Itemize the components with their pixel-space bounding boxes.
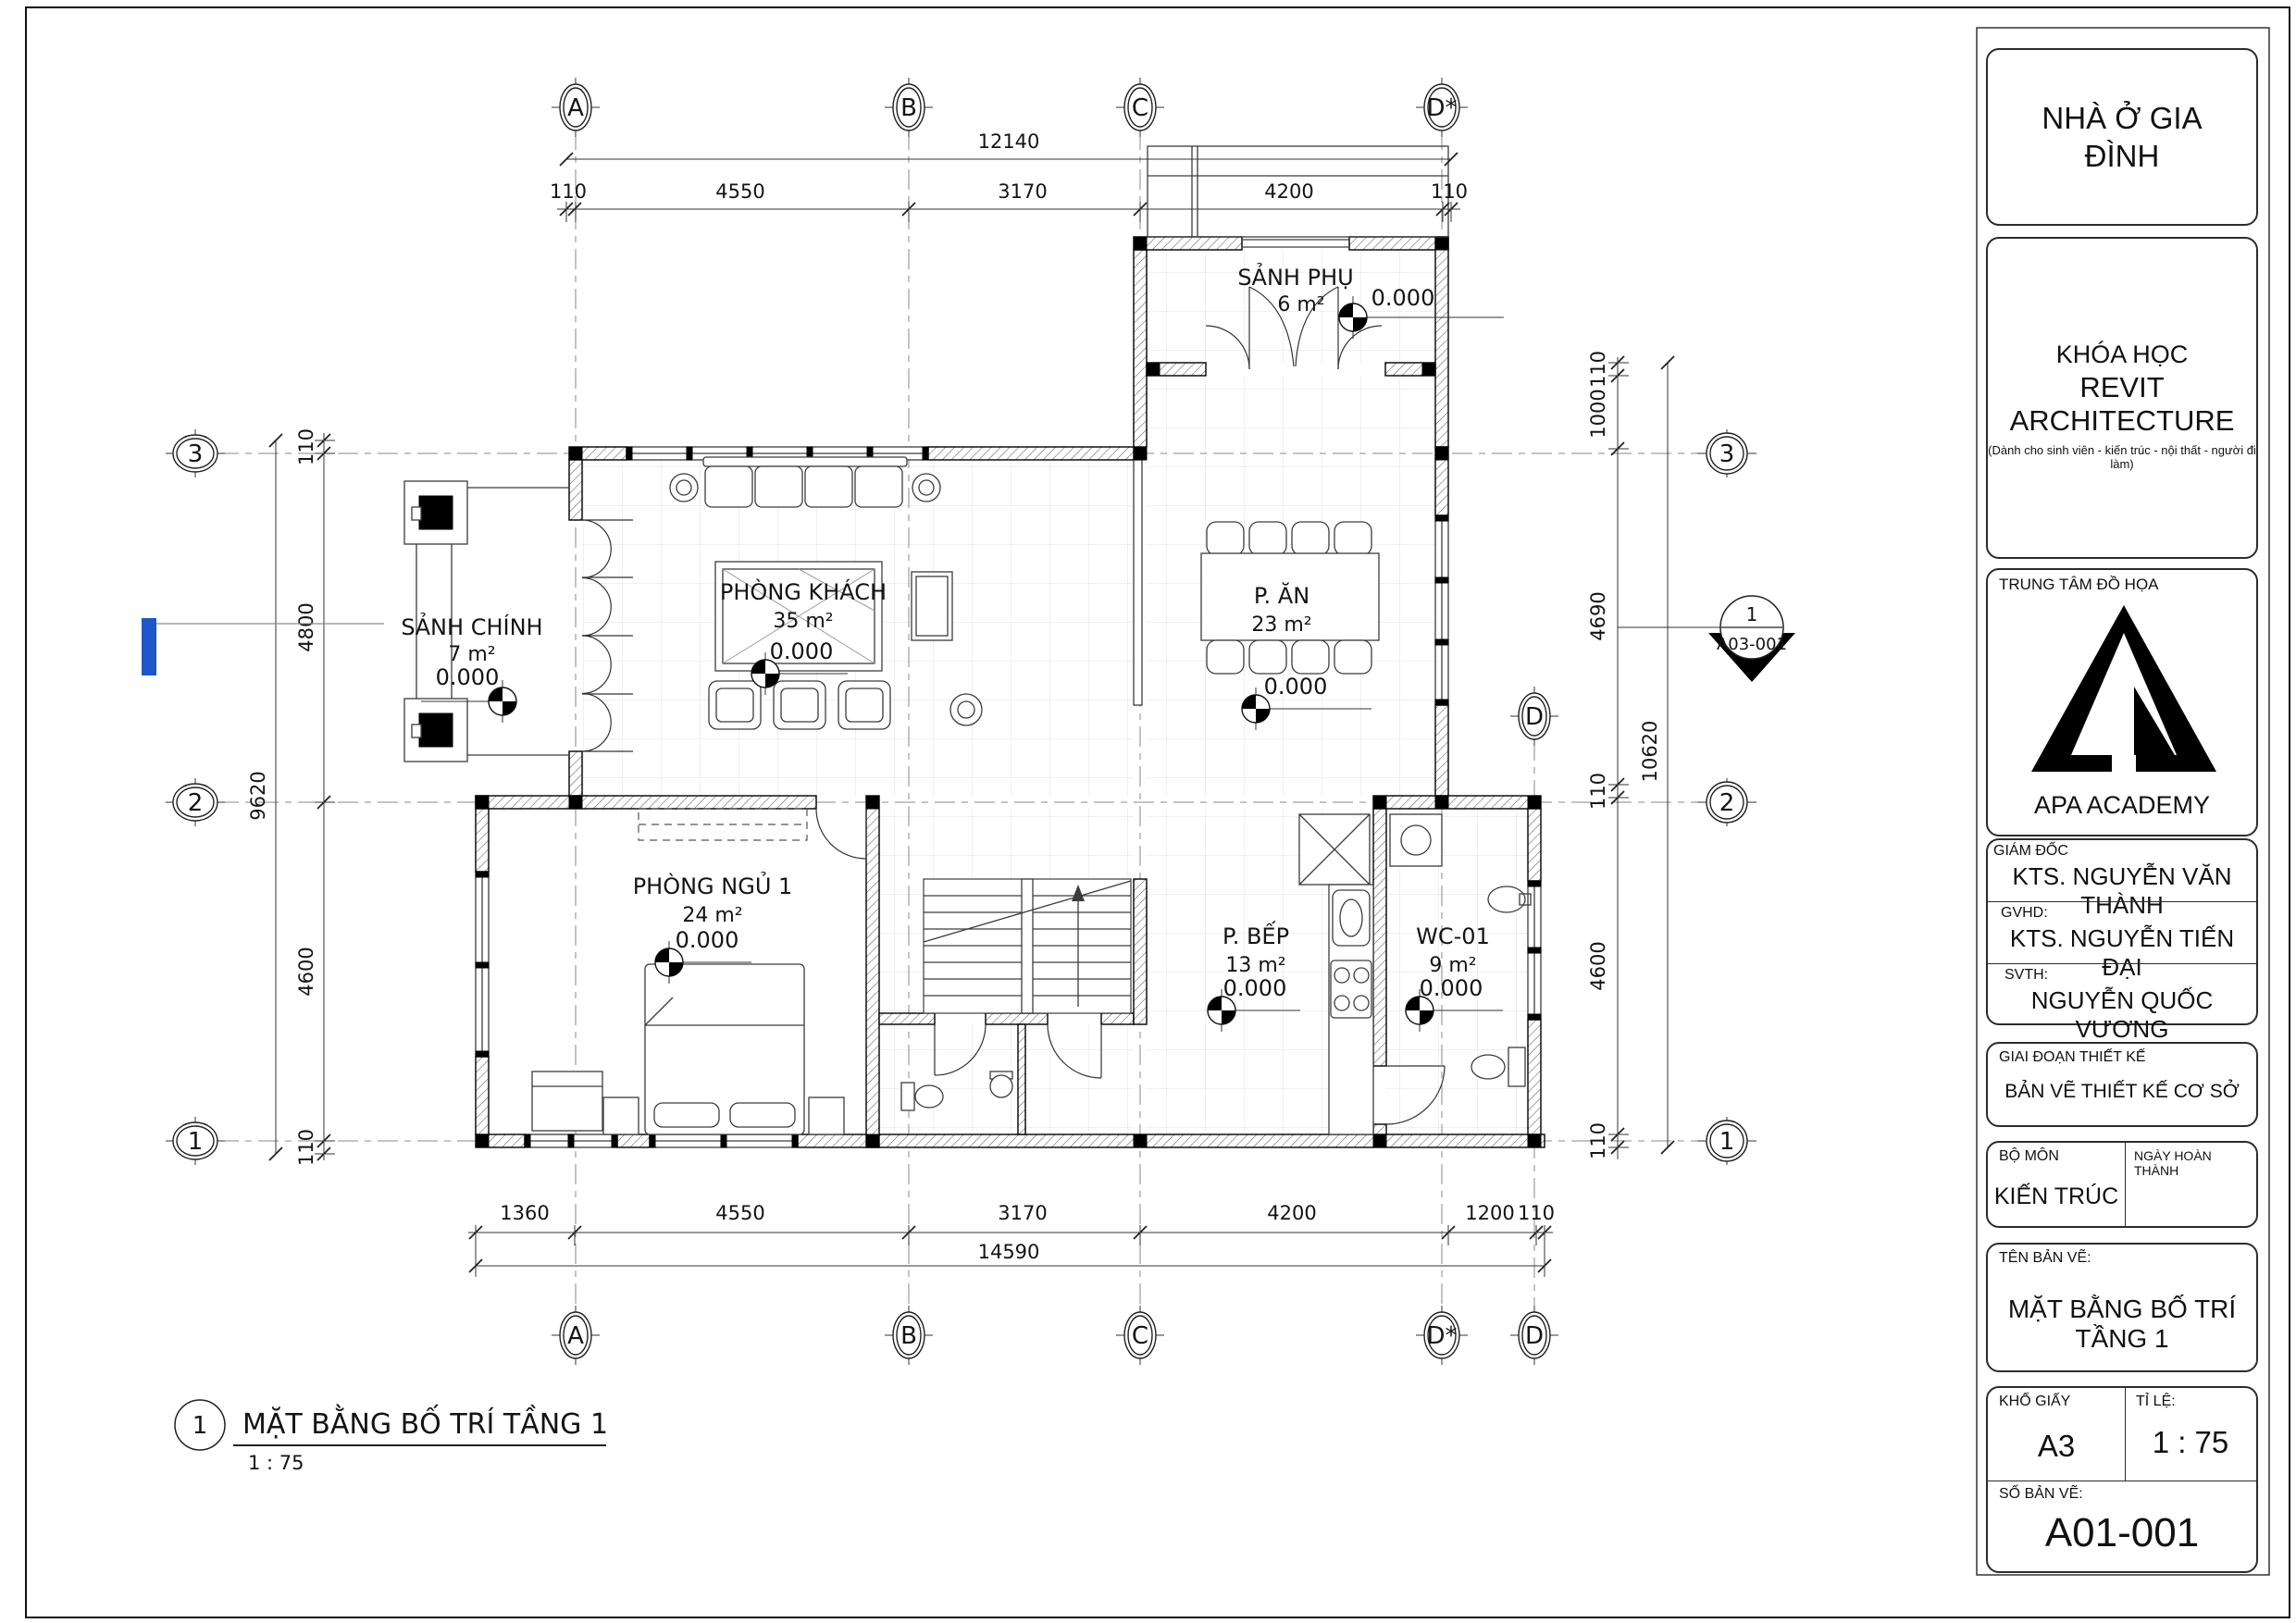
- door-bedroom: [816, 809, 866, 859]
- people-box: GIÁM ĐỐC KTS. NGUYỄN VĂN THÀNH GVHD: KTS…: [1986, 838, 2258, 1025]
- student-value: NGUYỄN QUỐC VƯƠNG: [1988, 986, 2256, 1044]
- number-value: A01-001: [1988, 1510, 2256, 1556]
- grid-bubble-Dstar-bottom: D*: [1416, 1306, 1468, 1365]
- dim-text: 4200: [1267, 1202, 1316, 1224]
- advisor-label: GVHD:: [2001, 905, 2048, 922]
- room-level: 0.000: [1264, 674, 1328, 700]
- room-area: 24 m²: [682, 904, 742, 927]
- grid-label: B: [900, 1322, 917, 1350]
- course-line1: KHÓA HỌC: [1988, 341, 2256, 369]
- room-level: 0.000: [1420, 975, 1483, 1001]
- scale-label: TỈ LỆ:: [2136, 1394, 2176, 1410]
- floor-plan-canvas: SẢNH PHỤ 6 m² 0.000 P. ĂN 23 m² 0.000: [0, 0, 2296, 1623]
- course-note: (Dành cho sinh viên - kiến trúc - nội th…: [1988, 443, 2256, 471]
- view-scale: 1 : 75: [248, 1452, 304, 1474]
- director-label: GIÁM ĐỐC: [1993, 843, 2068, 860]
- window-dining-east: [1435, 515, 1448, 705]
- dim-text: 4550: [715, 180, 764, 203]
- grid-bubble-2-right: 2: [1697, 778, 1756, 826]
- dim-text: 3170: [998, 180, 1047, 203]
- room-area: 13 m²: [1225, 954, 1285, 977]
- grid-label: D*: [1426, 94, 1457, 122]
- room-level: 0.000: [436, 664, 500, 690]
- room-area: 6 m²: [1277, 293, 1324, 316]
- room-area: 35 m²: [773, 610, 833, 633]
- grid-label: B: [900, 94, 917, 122]
- date-label: NGÀY HOÀN THÀNH: [2134, 1148, 2256, 1178]
- dim-text: 4600: [295, 947, 317, 996]
- project-name-box: NHÀ Ở GIA ĐÌNH: [1986, 48, 2258, 226]
- dim-text: 4200: [1264, 180, 1313, 203]
- dim-text: 3170: [998, 1202, 1047, 1224]
- cabinet: [912, 572, 952, 640]
- dim-text: 110: [1587, 773, 1609, 810]
- project-name: NHÀ Ở GIA ĐÌNH: [1988, 50, 2256, 224]
- dept-label: BỘ MÔN: [1999, 1148, 2059, 1165]
- drawing-name-value: MẶT BẰNG BỐ TRÍ TẦNG 1: [1988, 1295, 2256, 1354]
- student-label: SVTH:: [2004, 967, 2048, 984]
- grid-label: D: [1525, 1322, 1544, 1350]
- grid-bubble-C-bottom: C: [1116, 1306, 1164, 1365]
- grid-bubble-D-mid: D: [1510, 687, 1558, 746]
- course-box: KHÓA HỌC REVIT ARCHITECTURE (Dành cho si…: [1986, 237, 2258, 559]
- window-wc-east: [1528, 881, 1541, 1020]
- room-name: SẢNH CHÍNH: [401, 612, 542, 640]
- grid-label: A: [567, 1322, 584, 1350]
- apa-academy-logo-icon: [2027, 600, 2221, 775]
- dim-text: 1200: [1465, 1202, 1514, 1224]
- grid-bubble-1-right: 1: [1697, 1117, 1756, 1165]
- dim-text: 110: [1431, 180, 1468, 203]
- dim-text: 110: [1518, 1202, 1555, 1224]
- sheet: { "title_block": { "project": "NHÀ Ở GIA…: [0, 0, 2296, 1623]
- stairs: [924, 879, 1131, 1013]
- dim-text: 10620: [1639, 721, 1661, 783]
- grid-bubble-D-bottom: D: [1510, 1306, 1558, 1365]
- dim-text: 110: [295, 1129, 317, 1166]
- room-name: SẢNH PHỤ: [1237, 262, 1353, 291]
- drawing-name-box: TÊN BẢN VẼ: MẶT BẰNG BỐ TRÍ TẦNG 1: [1986, 1243, 2258, 1372]
- grid-label: C: [1132, 1322, 1148, 1350]
- grid-bubble-A-bottom: A: [552, 1306, 600, 1365]
- grid-label: C: [1132, 94, 1148, 122]
- paper-label: KHỔ GIẤY: [1999, 1394, 2070, 1410]
- grid-label: 3: [1719, 440, 1735, 468]
- room-level: 0.000: [1371, 285, 1435, 311]
- view-name: MẶT BẰNG BỐ TRÍ TẦNG 1: [242, 1404, 608, 1441]
- grid-label: 1: [188, 1128, 204, 1156]
- grid-bubble-3-left: 3: [166, 429, 225, 477]
- room-name: WC-01: [1416, 923, 1490, 949]
- room-sanh-chinh: SẢNH CHÍNH 7 m² 0.000: [401, 612, 542, 723]
- room-name: P. BẾP: [1222, 920, 1289, 949]
- number-label: SỐ BẢN VẼ:: [1999, 1486, 2083, 1503]
- scale-value: 1 : 75: [2125, 1425, 2256, 1460]
- academy-label: TRUNG TÂM ĐỒ HỌA: [1999, 576, 2159, 594]
- dim-text: 14590: [978, 1241, 1040, 1263]
- grid-label: A: [567, 94, 584, 122]
- dimensions-right: 110 1000 4690 110 4600 110 10620: [1587, 351, 1674, 1159]
- view-title: 1 MẶT BẰNG BỐ TRÍ TẦNG 1 1 : 75: [175, 1400, 608, 1474]
- dim-text: 4550: [715, 1202, 764, 1224]
- grid-label: 2: [1719, 789, 1735, 817]
- dim-text: 1360: [500, 1202, 549, 1224]
- grid-label: 2: [188, 789, 204, 817]
- phase-box: GIAI ĐOẠN THIẾT KẾ BẢN VẼ THIẾT KẾ CƠ SỞ: [1986, 1042, 2258, 1127]
- course-line2: REVIT ARCHITECTURE: [1988, 371, 2256, 438]
- dim-text: 110: [1587, 1122, 1609, 1159]
- grid-label: 1: [1719, 1128, 1735, 1156]
- view-number: 1: [192, 1412, 208, 1440]
- grid-bubble-Dstar: D*: [1416, 78, 1468, 137]
- room-area: 23 m²: [1251, 613, 1311, 637]
- paper-value: A3: [1988, 1429, 2125, 1464]
- academy-name: APA ACADEMY: [1988, 791, 2256, 820]
- grid-label: D*: [1426, 1322, 1457, 1350]
- room-name: PHÒNG KHÁCH: [720, 577, 887, 605]
- grid-bubble-1-left: 1: [166, 1117, 225, 1165]
- dim-text: 9620: [247, 771, 269, 820]
- dept-value: KIẾN TRÚC: [1988, 1183, 2125, 1210]
- callout-detail-number: 1: [1746, 603, 1758, 626]
- room-name: P. ĂN: [1254, 581, 1309, 609]
- grid-bubble-3-right: 3: [1697, 429, 1756, 477]
- grid-label: D: [1525, 703, 1544, 731]
- room-name: PHÒNG NGỦ 1: [633, 871, 793, 899]
- callout-sheet-number: A03-001: [1717, 635, 1787, 654]
- dim-text: 12140: [978, 130, 1040, 153]
- academy-box: TRUNG TÂM ĐỒ HỌA APA ACADEMY: [1986, 568, 2258, 836]
- grid-label: 3: [188, 440, 204, 468]
- room-area: 7 m²: [448, 643, 495, 666]
- room-level: 0.000: [770, 638, 834, 664]
- dim-text: 1000: [1587, 389, 1609, 438]
- grid-bubble-B: B: [885, 78, 933, 137]
- dimensions-left: 110 4800 4600 110 9620: [247, 428, 335, 1166]
- window-bedroom-west: [476, 872, 489, 1057]
- room-level: 0.000: [676, 927, 739, 953]
- grid-bubble-B-bottom: B: [885, 1306, 933, 1365]
- dim-text: 110: [295, 428, 317, 465]
- room-area: 9 m²: [1429, 954, 1476, 977]
- phase-value: BẢN VẼ THIẾT KẾ CƠ SỞ: [1988, 1081, 2256, 1103]
- room-level: 0.000: [1223, 975, 1287, 1001]
- window-bedroom-south-1: [525, 1134, 617, 1147]
- section-callout: 1 A03-001: [1618, 596, 1795, 682]
- dim-text: 4690: [1587, 591, 1609, 640]
- dim-text: 4600: [1587, 941, 1609, 990]
- dept-box: BỘ MÔN KIẾN TRÚC NGÀY HOÀN THÀNH: [1986, 1141, 2258, 1228]
- selected-section-marker[interactable]: [142, 618, 384, 675]
- dim-text: 110: [1587, 351, 1609, 388]
- dim-text: 110: [550, 180, 587, 203]
- grid-bubble-C: C: [1116, 78, 1164, 137]
- grid-bubble-2-left: 2: [166, 778, 225, 826]
- phase-label: GIAI ĐOẠN THIẾT KẾ: [1999, 1049, 2146, 1066]
- dim-text: 4800: [295, 602, 317, 651]
- sheet-info-box: KHỔ GIẤY A3 TỈ LỆ: 1 : 75 SỐ BẢN VẼ: A01…: [1986, 1386, 2258, 1573]
- drawing-name-label: TÊN BẢN VẼ:: [1999, 1250, 2091, 1267]
- window-bedroom-south-2: [650, 1134, 798, 1147]
- dimensions-bottom: 1360 4550 3170 4200 1200 110 14590: [468, 1202, 1555, 1277]
- grid-bubble-A: A: [552, 78, 600, 137]
- bedroom-furniture: [532, 809, 844, 1134]
